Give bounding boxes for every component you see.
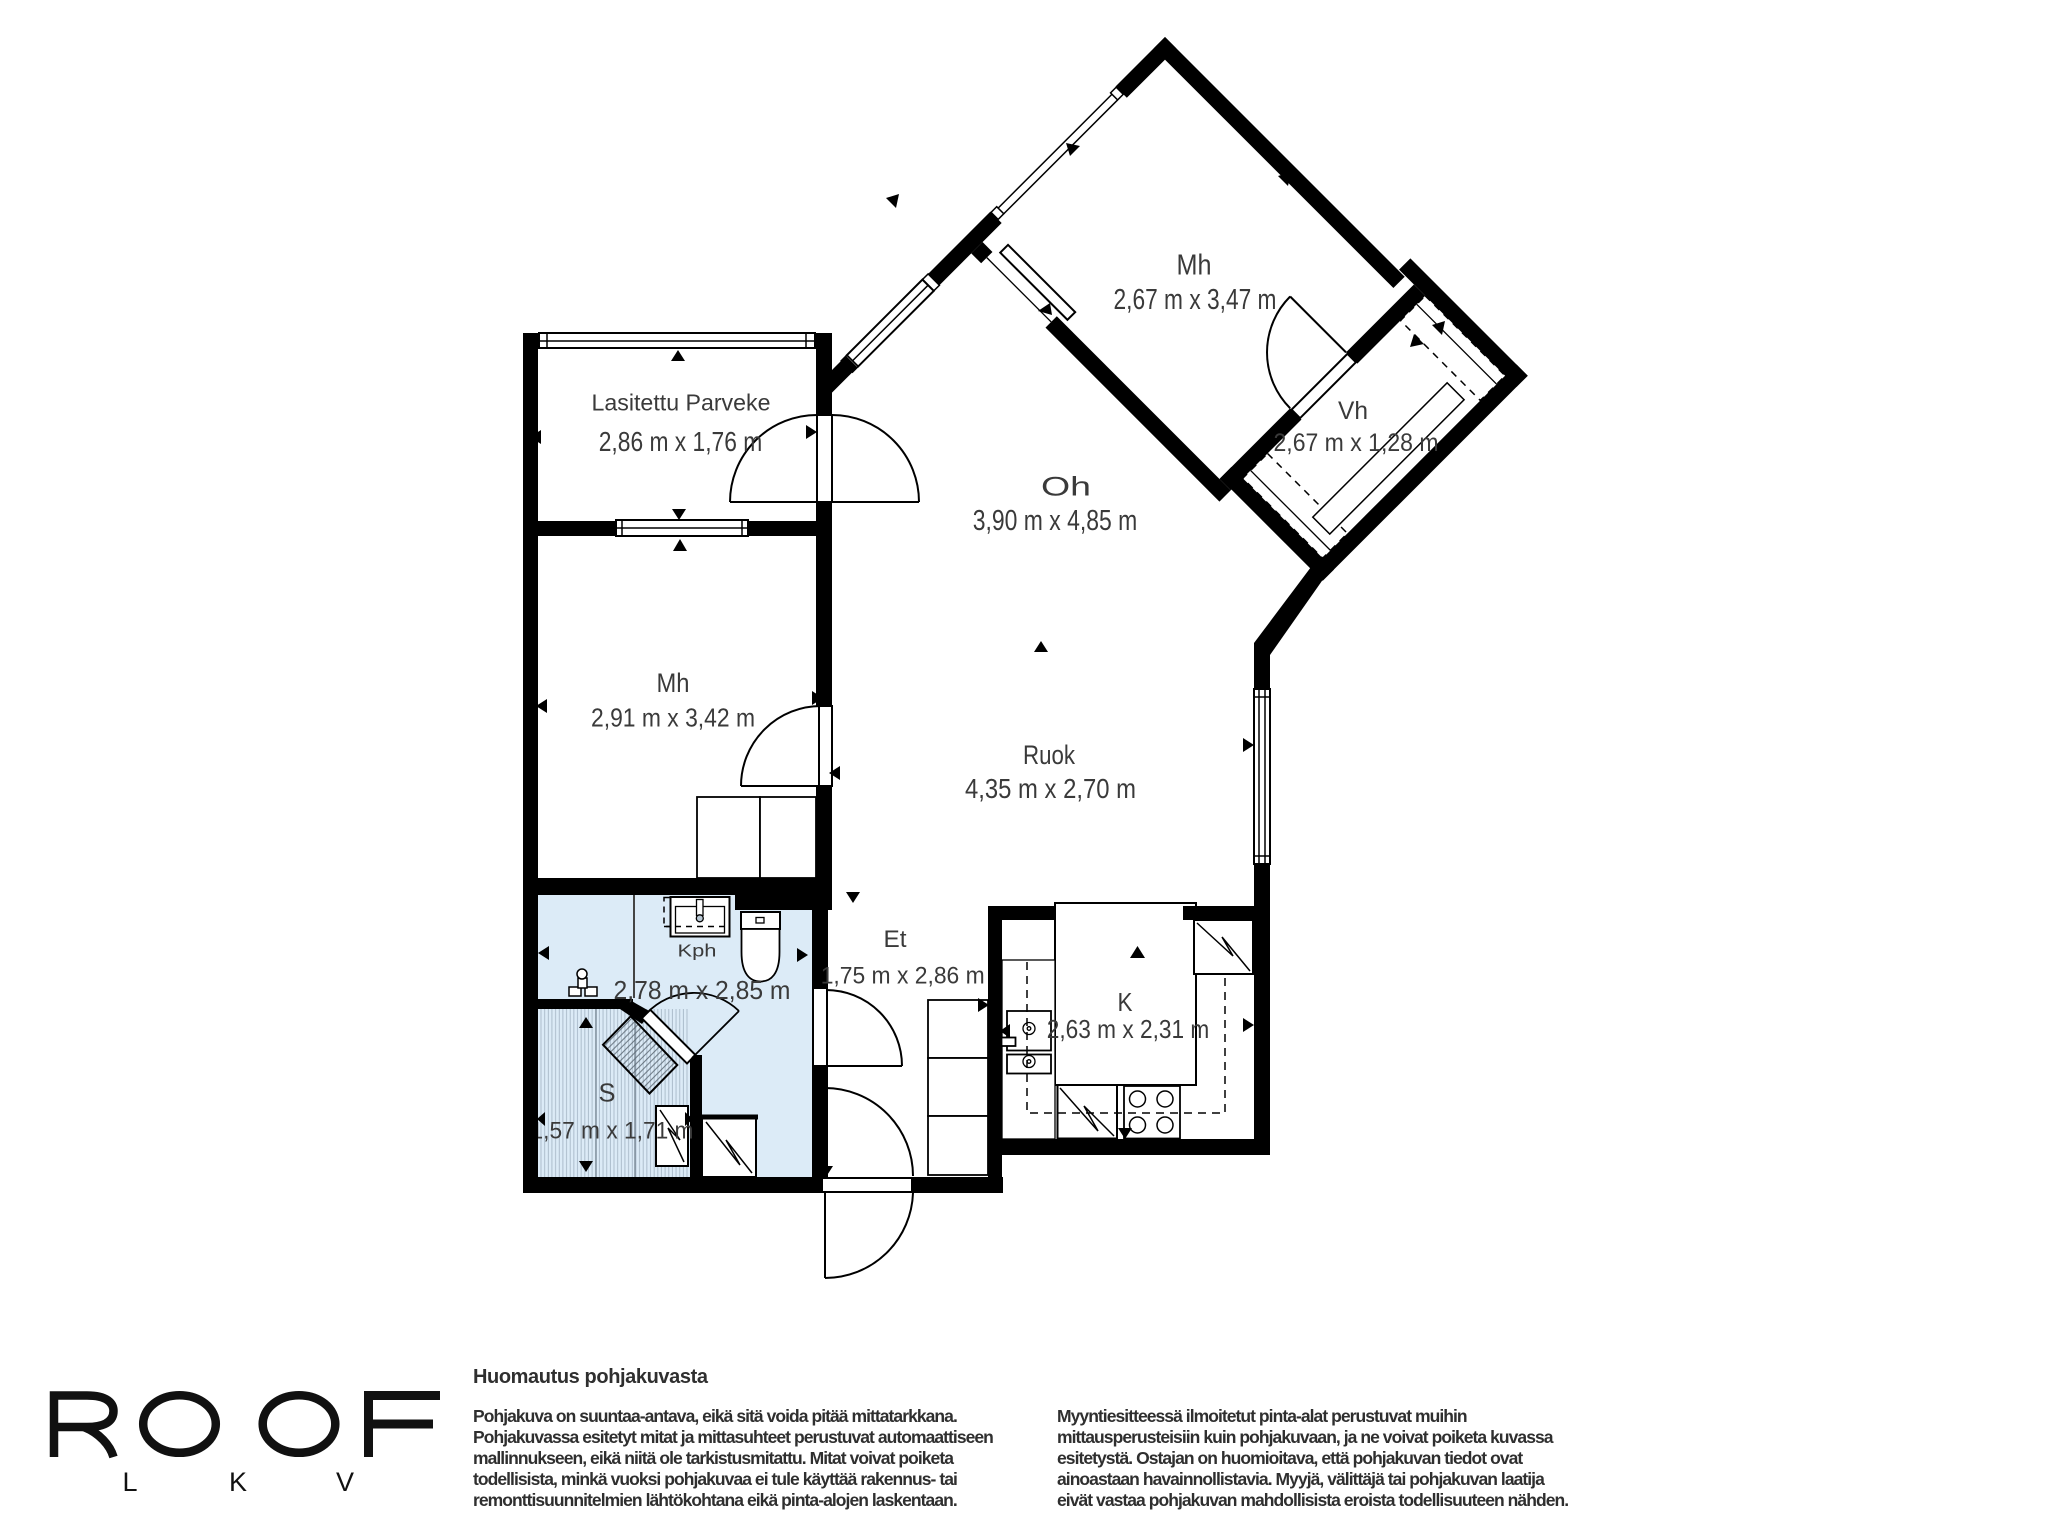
svg-text:2,78 m x 2,85 m: 2,78 m x 2,85 m — [614, 975, 791, 1005]
svg-text:L: L — [122, 1467, 137, 1497]
svg-text:3,90 m x 4,85 m: 3,90 m x 4,85 m — [973, 505, 1138, 537]
svg-text:V: V — [336, 1467, 354, 1497]
svg-text:Oh: Oh — [1041, 472, 1091, 502]
svg-text:S: S — [599, 1078, 616, 1108]
svg-text:Lasitettu Parveke: Lasitettu Parveke — [592, 390, 771, 416]
svg-text:2,86 m x 1,76 m: 2,86 m x 1,76 m — [599, 426, 763, 457]
svg-text:Mh: Mh — [657, 668, 690, 698]
svg-text:K: K — [1118, 987, 1134, 1017]
svg-text:2,67 m x 1,28 m: 2,67 m x 1,28 m — [1274, 429, 1439, 457]
svg-text:2,91 m x 3,42 m: 2,91 m x 3,42 m — [591, 703, 755, 733]
svg-text:2,67 m x 3,47 m: 2,67 m x 3,47 m — [1114, 284, 1277, 316]
svg-text:Ruok: Ruok — [1023, 740, 1075, 770]
svg-text:Et: Et — [884, 926, 907, 953]
svg-text:2,63 m x 2,31 m: 2,63 m x 2,31 m — [1047, 1014, 1210, 1044]
svg-text:Vh: Vh — [1338, 397, 1368, 425]
svg-text:1,57 m x 1,71 m: 1,57 m x 1,71 m — [531, 1118, 694, 1145]
svg-text:4,35 m x 2,70 m: 4,35 m x 2,70 m — [965, 773, 1136, 804]
svg-text:Mh: Mh — [1177, 250, 1212, 282]
svg-text:K: K — [229, 1467, 247, 1497]
svg-text:1,75 m x 2,86 m: 1,75 m x 2,86 m — [821, 963, 985, 990]
svg-text:Kph: Kph — [678, 941, 717, 961]
